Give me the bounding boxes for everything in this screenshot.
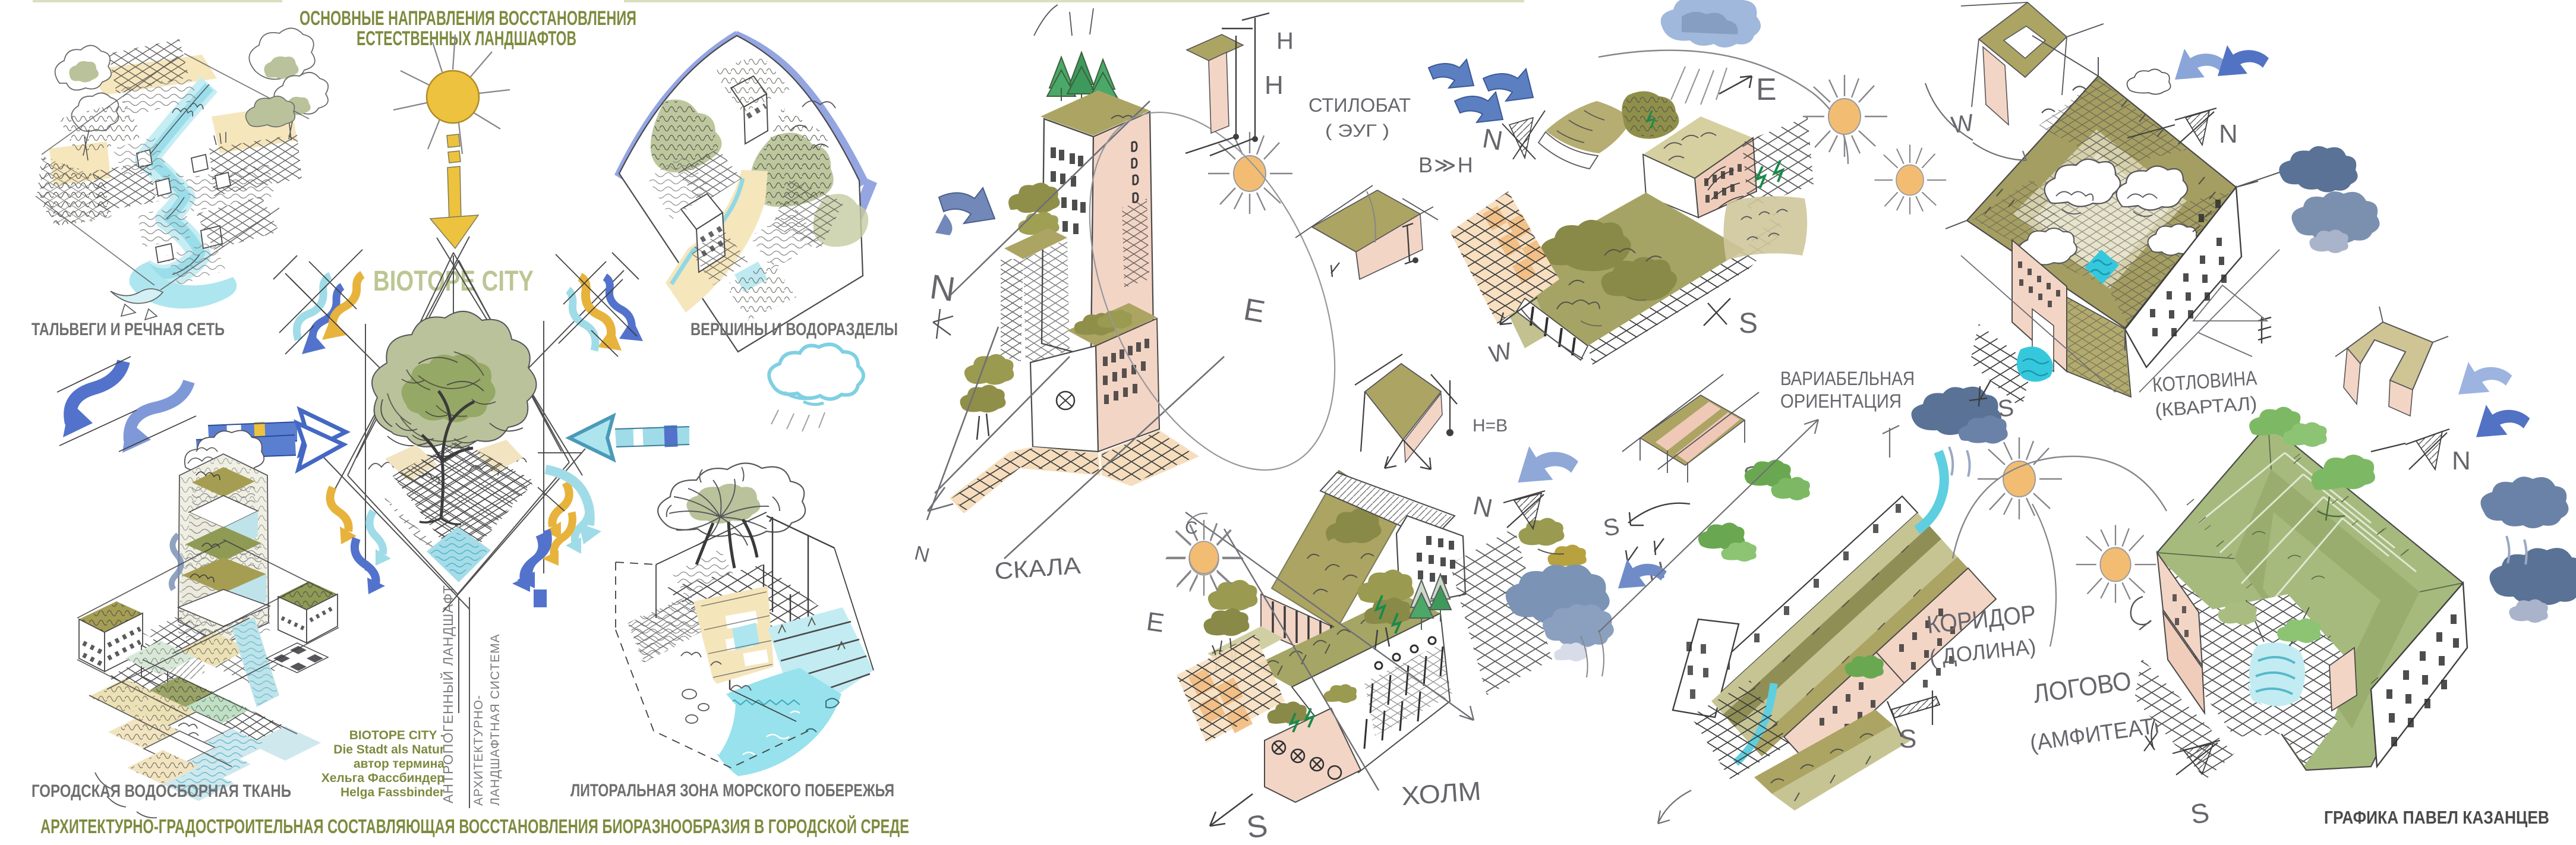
svg-text:ГОРОДСКАЯ ВОДОСБОРНАЯ ТКАНЬ: ГОРОДСКАЯ ВОДОСБОРНАЯ ТКАНЬ [31, 781, 291, 801]
svg-text:( ЭУГ ): ( ЭУГ ) [1325, 121, 1389, 141]
svg-text:N: N [2452, 446, 2471, 475]
svg-text:S: S [1899, 724, 1916, 753]
svg-text:АРХИТЕКТУРНО-: АРХИТЕКТУРНО- [472, 695, 485, 806]
svg-text:Хельга Фассбиндер: Хельга Фассбиндер [321, 771, 444, 785]
svg-text:автор термина: автор термина [354, 757, 444, 771]
svg-text:Helga Fassbinder: Helga Fassbinder [340, 786, 444, 799]
svg-text:В≫Н: В≫Н [1418, 153, 1474, 177]
svg-text:ХОЛМ: ХОЛМ [1401, 777, 1482, 811]
svg-text:ЕСТЕСТВЕННЫХ ЛАНДШАФТОВ: ЕСТЕСТВЕННЫХ ЛАНДШАФТОВ [357, 27, 576, 50]
svg-text:H: H [1276, 28, 1294, 54]
svg-text:ГРАФИКА ПАВЕЛ КАЗАНЦЕВ: ГРАФИКА ПАВЕЛ КАЗАНЦЕВ [2324, 807, 2549, 828]
svg-text:Die Stadt als Natur: Die Stadt als Natur [333, 743, 444, 756]
svg-text:ОРИЕНТАЦИЯ: ОРИЕНТАЦИЯ [1780, 390, 1902, 412]
svg-text:ОСНОВНЫЕ НАПРАВЛЕНИЯ ВОССТАНОВ: ОСНОВНЫЕ НАПРАВЛЕНИЯ ВОССТАНОВЛЕНИЯ [299, 7, 636, 30]
svg-text:ВАРИАБЕЛЬНАЯ: ВАРИАБЕЛЬНАЯ [1780, 368, 1915, 389]
svg-text:N: N [928, 267, 958, 309]
svg-text:ЛАНДШАФТНАЯ СИСТЕМА: ЛАНДШАФТНАЯ СИСТЕМА [488, 633, 502, 806]
svg-text:S: S [1739, 308, 1758, 339]
svg-text:С: С [1185, 518, 1198, 538]
svg-text:N: N [2219, 119, 2238, 149]
svg-text:АРХИТЕКТУРНО-ГРАДОСТРОИТЕЛЬНАЯ: АРХИТЕКТУРНО-ГРАДОСТРОИТЕЛЬНАЯ СОСТАВЛЯЮ… [40, 815, 909, 837]
svg-text:ЛИТОРАЛЬНАЯ ЗОНА МОРСКОГО ПОБЕ: ЛИТОРАЛЬНАЯ ЗОНА МОРСКОГО ПОБЕРЕЖЬЯ [570, 781, 894, 800]
svg-text:Н=В: Н=В [1473, 416, 1508, 436]
svg-text:E: E [1756, 72, 1777, 107]
svg-text:ТАЛЬВЕГИ И РЕЧНАЯ СЕТЬ: ТАЛЬВЕГИ И РЕЧНАЯ СЕТЬ [31, 320, 225, 339]
svg-text:СТИЛОБАТ: СТИЛОБАТ [1309, 94, 1411, 116]
svg-text:S: S [1997, 395, 2015, 422]
svg-text:BIOTOPE CITY -: BIOTOPE CITY - [349, 729, 444, 742]
svg-text:ВЕРШИНЫ И ВОДОРАЗДЕЛЫ: ВЕРШИНЫ И ВОДОРАЗДЕЛЫ [690, 320, 898, 339]
svg-text:W: W [1950, 109, 1976, 138]
svg-text:H: H [1265, 71, 1284, 100]
